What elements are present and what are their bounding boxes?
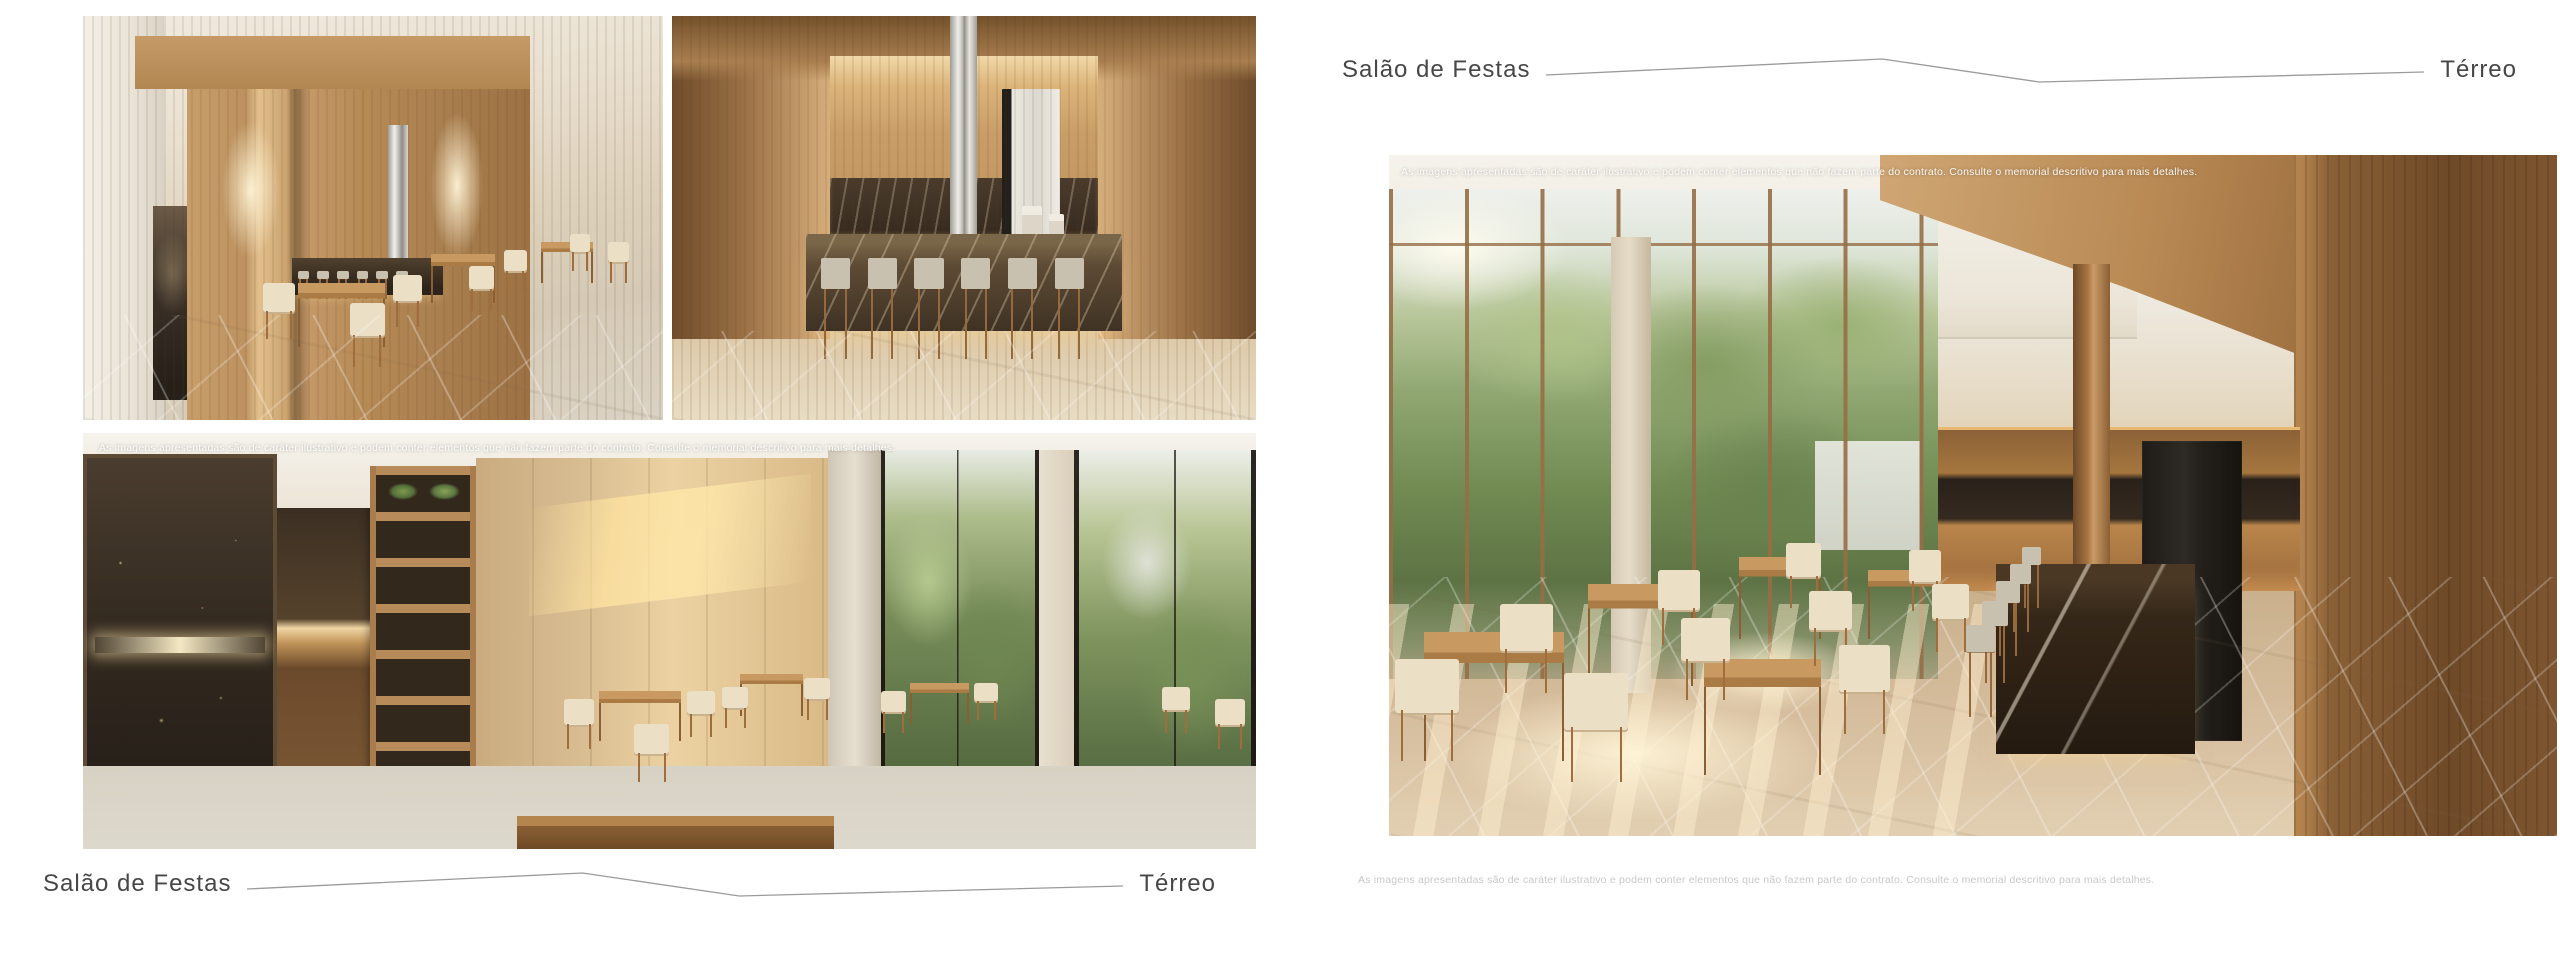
chair — [608, 242, 629, 282]
render-party-hall-buffet: As imagens apresentadas são de caráter i… — [83, 433, 1256, 849]
chair — [1500, 604, 1553, 693]
niche-light-strip — [95, 637, 265, 654]
dining-table — [910, 683, 969, 725]
sunlight-patch — [222, 121, 280, 258]
chair — [1564, 673, 1628, 782]
chair — [1162, 687, 1190, 733]
cylindrical-chimney — [2073, 264, 2109, 591]
chair — [634, 724, 669, 782]
barstool — [1966, 625, 1995, 717]
page-left-footer: Salão de Festas Térreo — [43, 866, 1216, 902]
plant — [429, 483, 459, 500]
steel-chimney — [388, 125, 409, 262]
steel-chimney — [950, 16, 977, 234]
chair — [570, 234, 590, 270]
caption-zigzag-line — [1546, 52, 2424, 88]
render-party-hall-lounge — [83, 16, 663, 420]
chair — [804, 678, 830, 720]
dining-table — [740, 674, 803, 716]
floor-label: Térreo — [1139, 870, 1216, 898]
render-party-hall-bar — [672, 16, 1256, 420]
page-left: As imagens apresentadas são de caráter i… — [0, 0, 1280, 960]
floor-label: Térreo — [2440, 56, 2517, 84]
plant — [388, 483, 418, 500]
chair — [881, 691, 907, 733]
chair — [1932, 584, 1969, 652]
page-title: Salão de Festas — [43, 870, 231, 898]
page-title: Salão de Festas — [1342, 56, 1530, 84]
page-right: Salão de Festas Térreo — [1280, 0, 2560, 960]
chair — [722, 687, 748, 729]
chair — [1681, 618, 1730, 700]
chair — [504, 250, 527, 290]
caption-zigzag-line — [247, 866, 1123, 902]
chair — [564, 699, 594, 749]
disclaimer-overlay: As imagens apresentadas são de caráter i… — [99, 442, 895, 454]
chair — [1215, 699, 1245, 749]
stone-floor — [672, 331, 1256, 420]
chair — [1395, 659, 1459, 761]
page-right-header: Salão de Festas Térreo — [1342, 52, 2517, 88]
foreground-wood-counter — [517, 816, 834, 849]
brochure-spread: As imagens apresentadas são de caráter i… — [0, 0, 2560, 960]
wood-beam — [135, 36, 529, 89]
chair — [974, 683, 997, 720]
chair — [687, 691, 715, 737]
stone-floor — [83, 315, 663, 420]
chair — [1839, 645, 1890, 734]
disclaimer-footer: As imagens apresentadas são de caráter i… — [1358, 874, 2154, 886]
chair — [469, 266, 495, 310]
render-party-hall-panorama: As imagens apresentadas são de caráter i… — [1389, 155, 2557, 836]
sunlight-patch — [431, 113, 483, 258]
disclaimer-overlay: As imagens apresentadas são de caráter i… — [1401, 166, 2197, 178]
